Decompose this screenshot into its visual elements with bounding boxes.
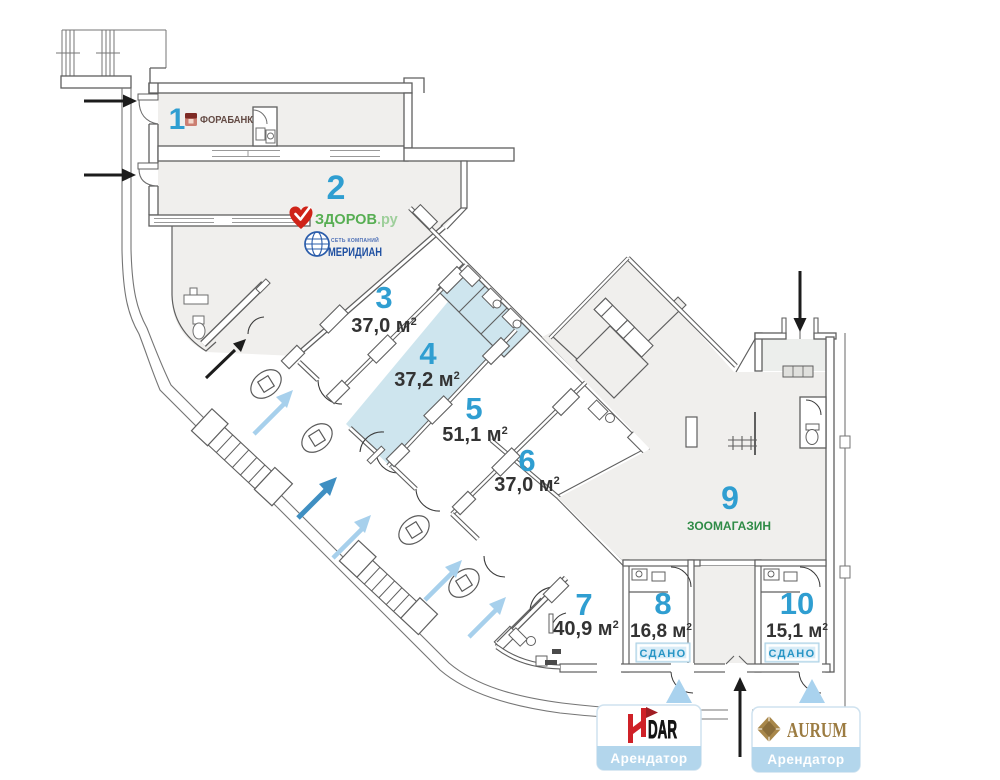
- svg-text:СЕТЬ КОМПАНИЙ: СЕТЬ КОМПАНИЙ: [331, 236, 379, 244]
- svg-text:DAR: DAR: [648, 716, 677, 744]
- svg-text:15,1 м2: 15,1 м2: [766, 621, 828, 642]
- svg-text:СДАНО: СДАНО: [639, 648, 686, 660]
- svg-text:3: 3: [375, 280, 392, 315]
- svg-text:ЗДОРОВ.ру: ЗДОРОВ.ру: [315, 212, 398, 228]
- svg-text:AURUM: AURUM: [787, 718, 847, 742]
- svg-text:9: 9: [721, 480, 739, 516]
- svg-text:4: 4: [419, 336, 437, 371]
- svg-text:Арендатор: Арендатор: [610, 751, 687, 766]
- svg-text:МЕРИДИАН: МЕРИДИАН: [328, 245, 382, 259]
- svg-text:16,8 м2: 16,8 м2: [630, 621, 692, 642]
- svg-text:40,9 м2: 40,9 м2: [553, 618, 618, 640]
- svg-text:ФОРАБАНК: ФОРАБАНК: [200, 114, 254, 126]
- svg-text:6: 6: [518, 443, 535, 478]
- svg-text:2: 2: [327, 169, 346, 207]
- svg-text:Арендатор: Арендатор: [767, 752, 844, 767]
- svg-text:7: 7: [575, 587, 592, 622]
- svg-text:10: 10: [780, 586, 814, 621]
- svg-text:51,1 м2: 51,1 м2: [442, 424, 507, 446]
- svg-text:СДАНО: СДАНО: [768, 648, 815, 660]
- svg-text:37,0 м2: 37,0 м2: [494, 474, 559, 496]
- svg-text:8: 8: [654, 586, 671, 621]
- svg-text:37,2 м2: 37,2 м2: [394, 369, 459, 391]
- svg-text:5: 5: [465, 391, 482, 426]
- svg-text:1: 1: [169, 103, 186, 136]
- svg-text:37,0 м2: 37,0 м2: [351, 315, 416, 337]
- svg-text:ЗООМАГАЗИН: ЗООМАГАЗИН: [687, 521, 771, 533]
